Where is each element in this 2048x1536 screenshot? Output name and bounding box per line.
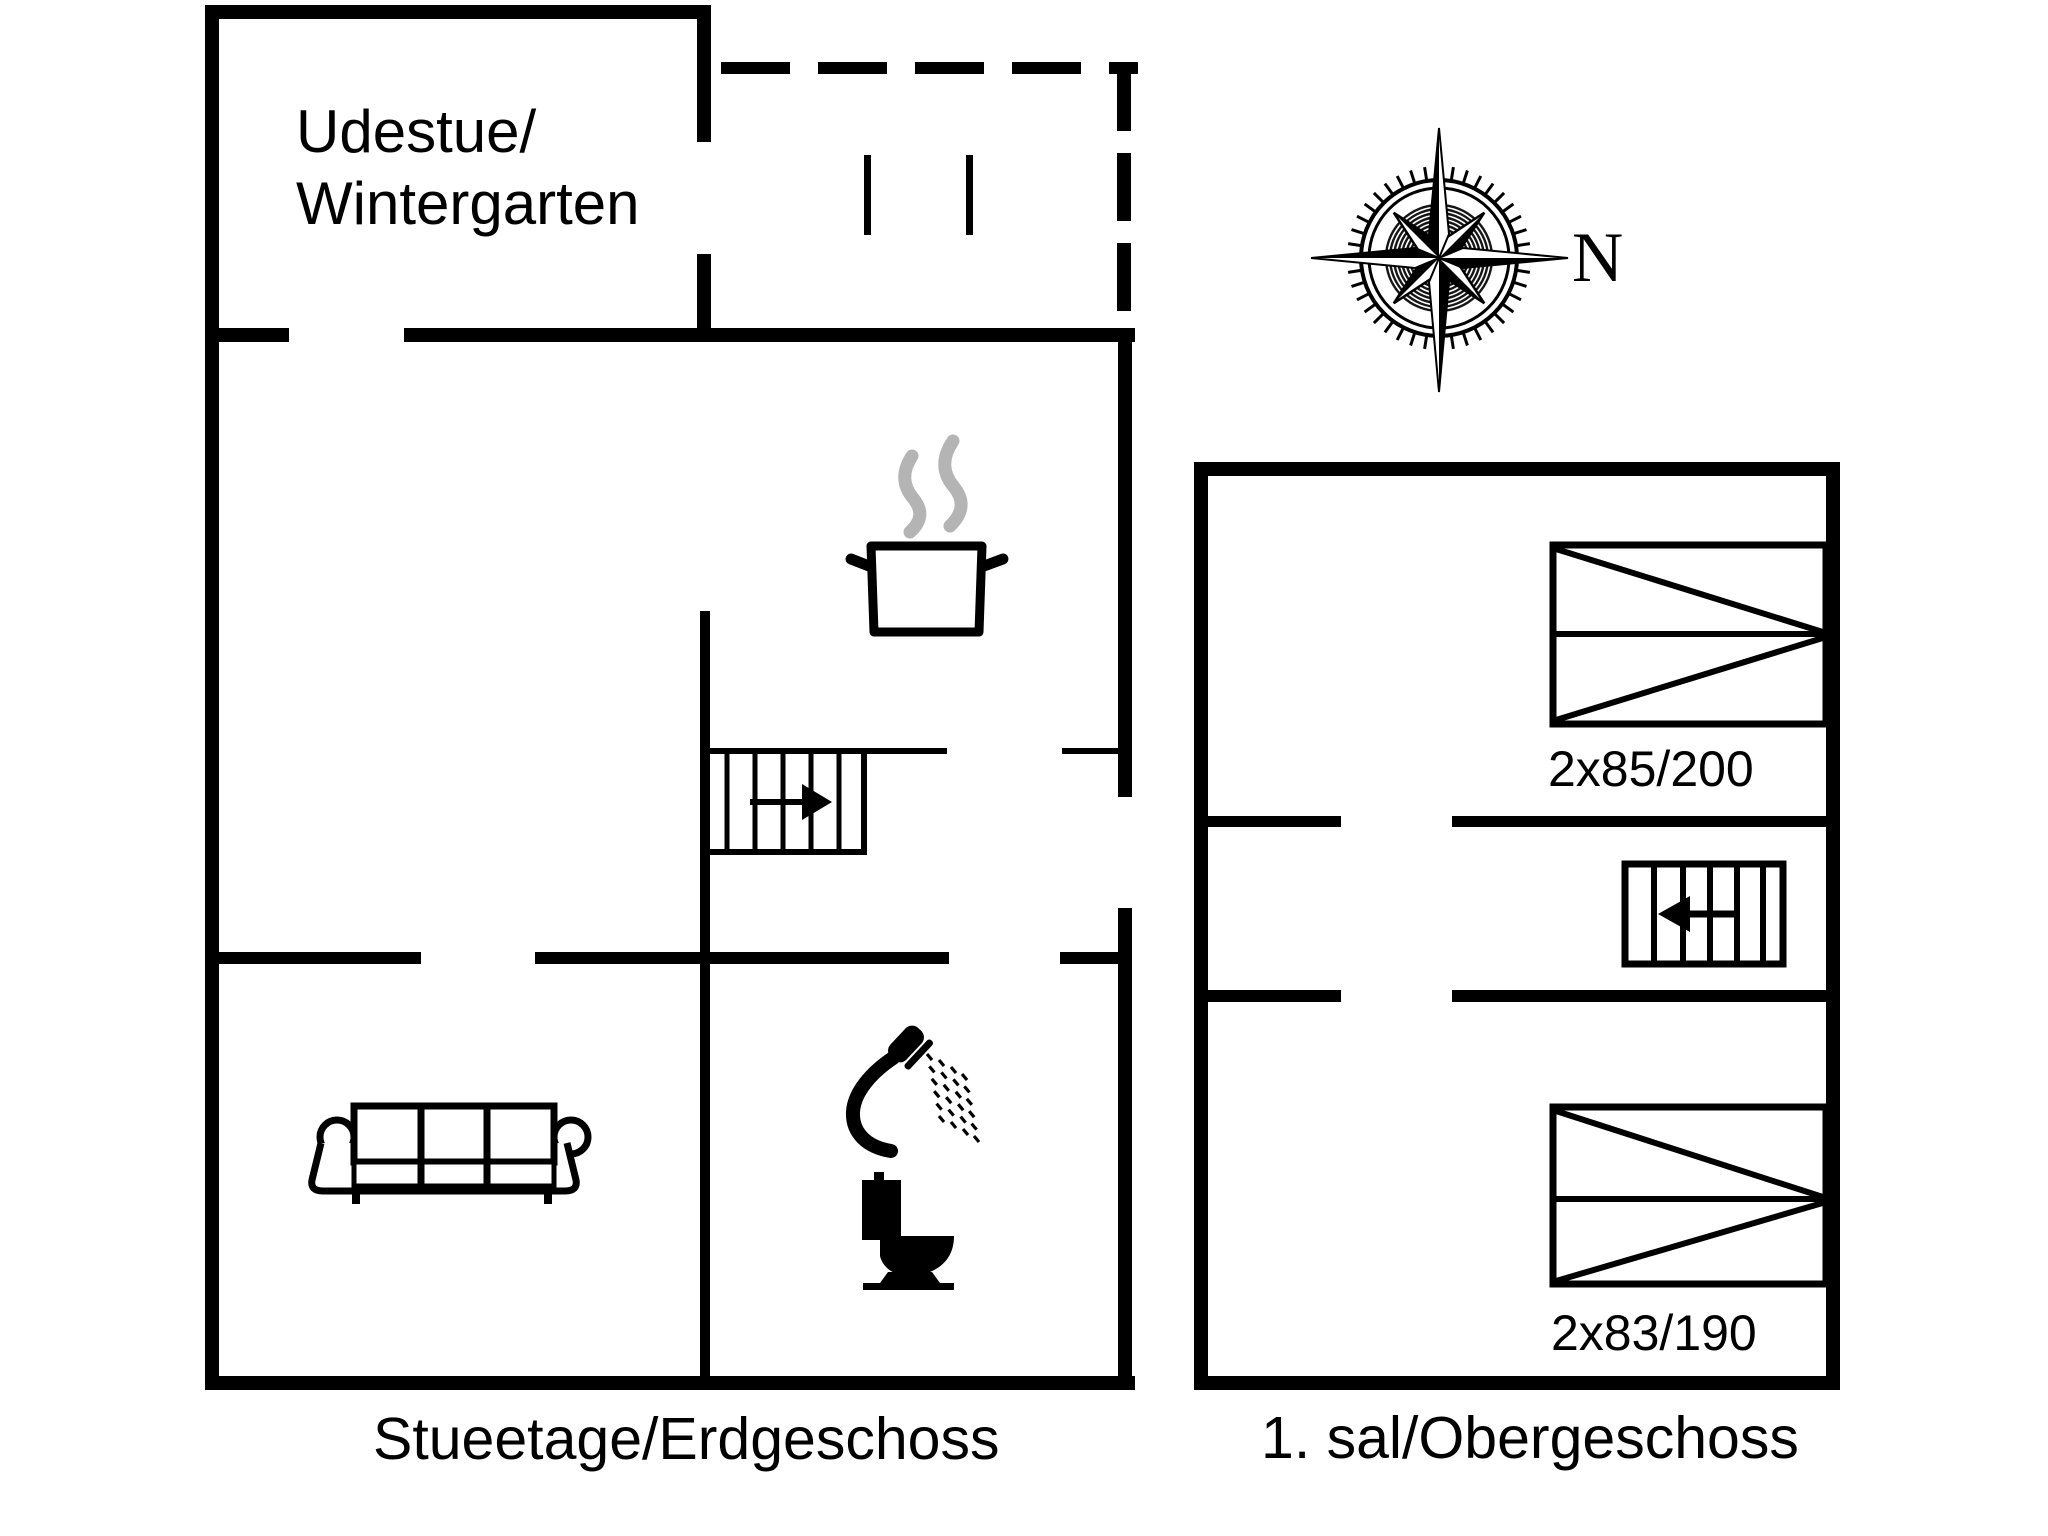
svg-text:Wintergarten: Wintergarten <box>296 170 639 237</box>
svg-text:2x83/190: 2x83/190 <box>1551 1305 1757 1361</box>
svg-text:Udestue/: Udestue/ <box>296 98 536 165</box>
svg-text:2x85/200: 2x85/200 <box>1548 741 1754 797</box>
svg-text:Stueetage/Erdgeschoss: Stueetage/Erdgeschoss <box>373 1406 999 1472</box>
svg-text:N: N <box>1572 219 1623 297</box>
svg-text:1. sal/Obergeschoss: 1. sal/Obergeschoss <box>1261 1405 1799 1471</box>
